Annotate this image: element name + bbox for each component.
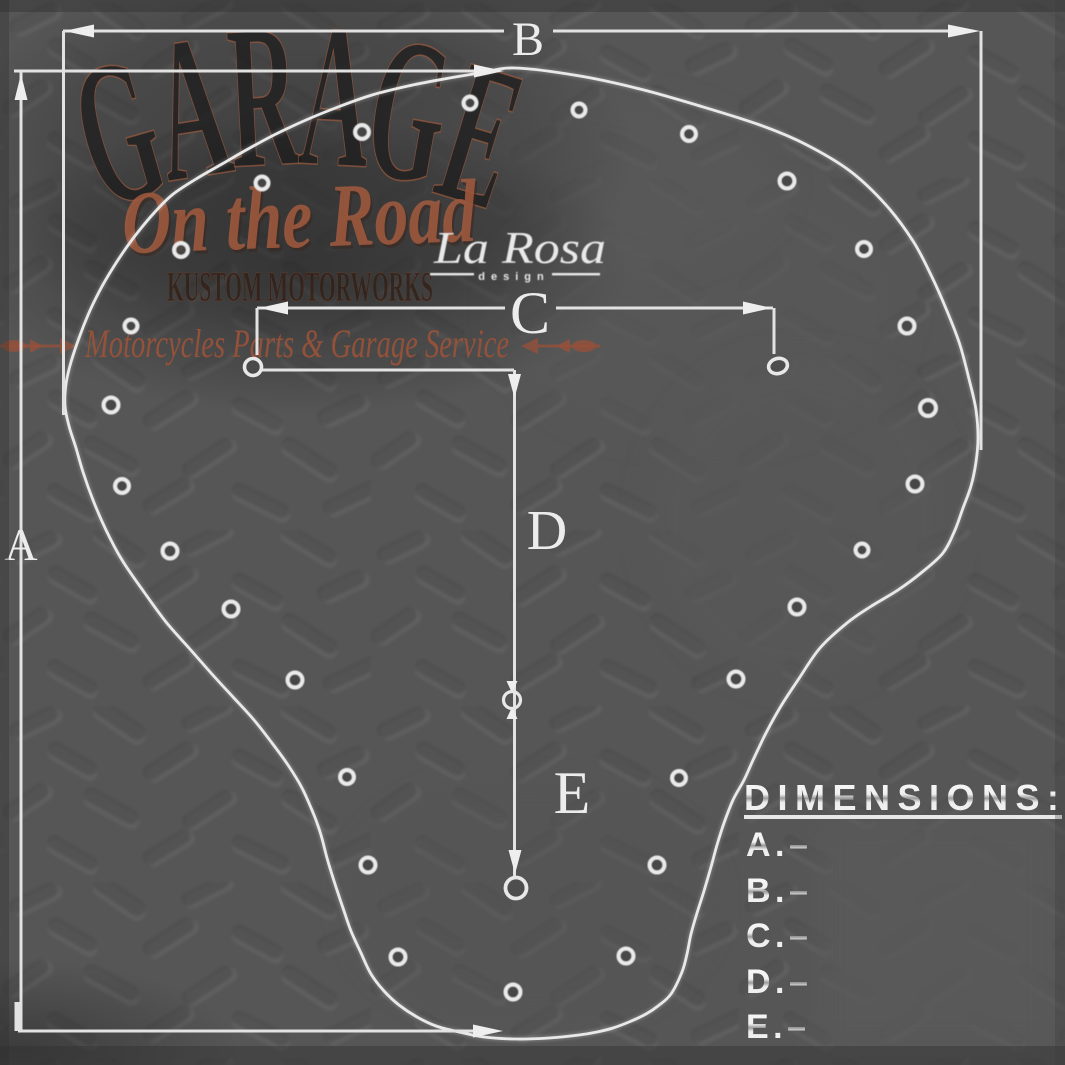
svg-text:KUSTOM MOTORWORKS: KUSTOM MOTORWORKS <box>167 265 433 311</box>
svg-text:DIMENSIONS:: DIMENSIONS: <box>744 777 1065 818</box>
svg-text:E.–: E.– <box>746 1008 811 1046</box>
svg-text:La Rosa: La Rosa <box>433 223 606 273</box>
svg-text:B: B <box>512 13 544 66</box>
svg-text:design: design <box>478 271 549 283</box>
svg-text:E: E <box>554 760 591 826</box>
svg-text:C: C <box>510 280 550 346</box>
svg-text:D.–: D.– <box>746 963 812 1001</box>
svg-text:D: D <box>527 500 567 562</box>
svg-text:On the Road: On the Road <box>120 162 479 273</box>
svg-text:C.–: C.– <box>746 917 812 955</box>
svg-text:A: A <box>4 519 37 570</box>
svg-text:Motorcycles Parts & Garage Ser: Motorcycles Parts & Garage Service <box>84 321 509 366</box>
svg-text:B.–: B.– <box>746 872 812 910</box>
svg-text:A.–: A.– <box>746 826 812 864</box>
